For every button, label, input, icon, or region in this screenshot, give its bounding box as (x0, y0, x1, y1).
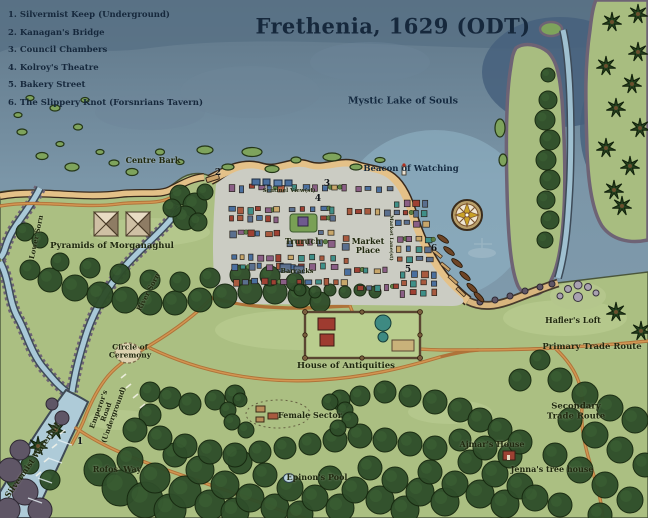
label-epinons-pool: Epinon's Pool (287, 472, 348, 482)
label-jennas-tree-house: Jenna's tree house (511, 464, 594, 474)
label-market-place: Market Place (349, 237, 387, 255)
marker-5: 5 (405, 265, 411, 275)
theatre-building (298, 217, 308, 226)
label-rofos-way: Rofos' Way (93, 464, 142, 474)
label-market-lane: Market Lane(st) (388, 215, 394, 261)
label-truruch: Truruch (285, 236, 321, 246)
label-secondary-trade-route: Secondary Trade Route (544, 402, 608, 421)
label-house-of-antiquities: House of Antiquities (297, 361, 395, 371)
compass-rose (452, 200, 482, 230)
fantasy-map: Frethenia, 1629 (ODT) 1. Silvermist Keep… (0, 0, 648, 518)
marker-2: 2 (215, 168, 221, 178)
label-centre-bark: Centre Bark (126, 155, 181, 165)
label-female-sector: Female Sector (278, 410, 342, 420)
legend-item: 3. Council Chambers (8, 45, 203, 55)
label-haflers-loft: Hafler's Loft (545, 315, 601, 325)
marker-3: 3 (324, 179, 330, 189)
legend-item: 2. Kanagan's Bridge (8, 28, 203, 38)
legend-item: 1. Silvermist Keep (Underground) (8, 10, 203, 20)
legend-item: 5. Bakery Street (8, 80, 203, 90)
east-strip-island (506, 45, 564, 295)
label-circle-of-ceremony: Circle of Ceremony (108, 344, 152, 361)
marker-1: 1 (77, 437, 83, 447)
map-title: Frethenia, 1629 (ODT) (256, 14, 531, 39)
legend-item: 4. Kolroy's Theatre (8, 63, 203, 73)
label-beacon-of-watching: Beacon of Watching (363, 164, 458, 174)
label-sentinel-view: Sentinel View(st) (263, 188, 316, 194)
label-pyramids: Pyramids of Morganaghul (50, 241, 174, 251)
label-mystic-lake: Mystic Lake of Souls (348, 96, 458, 107)
house-of-antiquities-compound (303, 310, 423, 361)
legend-item: 6. The Slippery Knot (Forsnrians Tavern) (8, 98, 203, 108)
label-barracks: Barracks (281, 267, 314, 275)
ajmars-house-icon (503, 451, 515, 460)
marker-4: 4 (315, 194, 321, 204)
map-legend: 1. Silvermist Keep (Underground) 2. Kana… (8, 10, 203, 115)
label-primary-trade-route: Primary Trade Route (542, 342, 641, 352)
label-ajmars-house: Ajmar's House (459, 439, 524, 449)
far-east-landmass (586, 0, 648, 241)
marker-6: 6 (431, 244, 437, 254)
